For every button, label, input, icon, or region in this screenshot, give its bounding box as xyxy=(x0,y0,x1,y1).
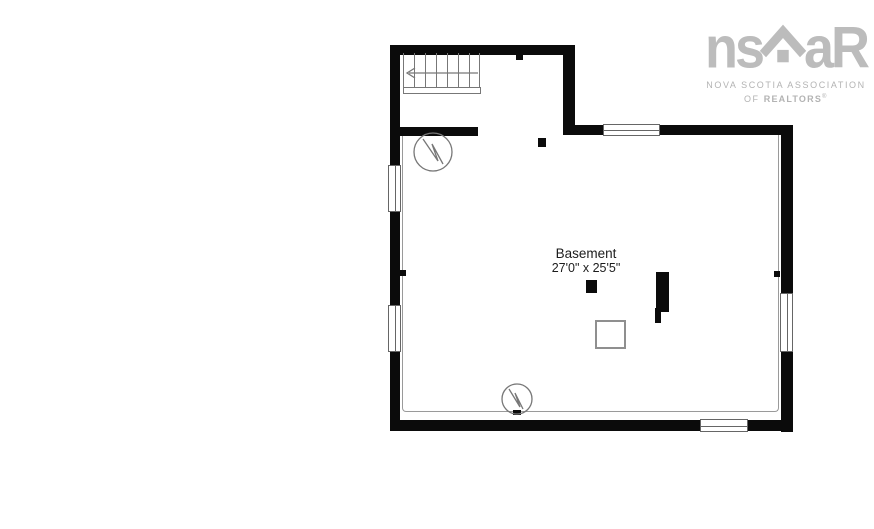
wordmark-ns: ns xyxy=(705,22,762,74)
room-label: Basement 27'0" x 25'5" xyxy=(505,246,667,276)
nsar-logo: ns aR NOVA SCOTIA ASSOCIATION OF REALTOR… xyxy=(703,22,869,105)
wordmark-ar: aR xyxy=(804,22,867,74)
room-name: Basement xyxy=(505,246,667,261)
nsar-wordmark: ns aR xyxy=(703,22,869,74)
house-roof-icon xyxy=(758,22,808,70)
water-heater-upper-zigzag xyxy=(423,139,443,164)
nsar-subtitle-line1: NOVA SCOTIA ASSOCIATION xyxy=(703,79,869,91)
nsar-subtitle-line2: OF REALTORS® xyxy=(703,91,869,105)
floorplan-image: Basement 27'0" x 25'5" ns aR NOVA SCOTIA… xyxy=(0,0,874,529)
water-heater-lower-zigzag xyxy=(509,389,523,409)
subtitle-realtors: REALTORS xyxy=(764,94,822,104)
subtitle-registered-mark: ® xyxy=(822,94,828,100)
room-dimensions: 27'0" x 25'5" xyxy=(505,261,667,276)
nsar-subtitle: NOVA SCOTIA ASSOCIATION OF REALTORS® xyxy=(703,79,869,105)
subtitle-of: OF xyxy=(744,94,764,104)
water-heater-upper-icon xyxy=(414,133,452,171)
